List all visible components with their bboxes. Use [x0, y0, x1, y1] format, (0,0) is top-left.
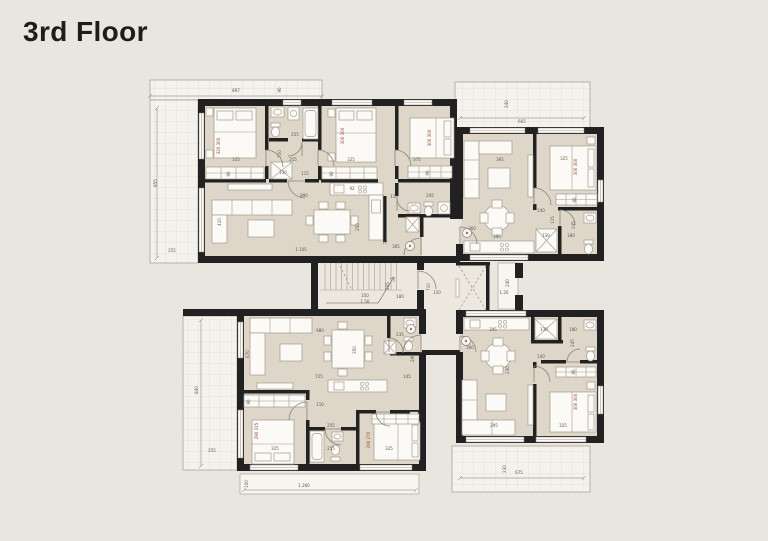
- dim-label: 890: [300, 193, 308, 198]
- dim-label: 245: [426, 193, 434, 198]
- dim-label: 840: [194, 386, 199, 394]
- dim-label: 92: [349, 186, 355, 191]
- dim-label: 240: [504, 100, 509, 108]
- dim-label: 230: [505, 366, 510, 374]
- dim-label: 320 300: [216, 137, 221, 154]
- dim-label: 130: [542, 233, 550, 238]
- dim-label: 290 270: [366, 431, 371, 448]
- terrace-strip-bottom: [240, 474, 419, 494]
- dim-label: 290: [410, 354, 415, 362]
- dim-label: 245: [570, 339, 575, 347]
- dim-label: 255: [291, 132, 299, 137]
- dim-label: 100: [244, 480, 249, 488]
- corridor-floor: [422, 213, 458, 352]
- dim-label: 140: [537, 354, 545, 359]
- dim-label: 375: [413, 157, 421, 162]
- dim-label: 130: [279, 170, 287, 175]
- dim-label: 300 300: [340, 127, 345, 144]
- dim-label: 235: [396, 332, 404, 337]
- dim-label: 130: [540, 327, 548, 332]
- dim-label: 350: [352, 346, 357, 354]
- dim-label: 325: [560, 156, 568, 161]
- dim-label: 395: [493, 234, 501, 239]
- dim-label: 205: [385, 282, 390, 290]
- dim-label: 395: [496, 157, 504, 162]
- dim-label: 410: [217, 218, 222, 226]
- dim-label: 395: [489, 327, 497, 332]
- elevator-floor: [458, 264, 488, 311]
- dim-label: 1.260: [298, 483, 310, 488]
- dim-label: 180: [567, 233, 575, 238]
- dim-label: 725: [315, 374, 323, 379]
- dim-label: 110: [316, 402, 324, 407]
- dim-label: 250: [355, 223, 360, 231]
- dim-label: 300 300: [573, 393, 578, 410]
- dim-label: 325: [559, 423, 567, 428]
- balcony-bottom-right: [452, 446, 590, 492]
- dim-label: 290 315: [254, 422, 259, 439]
- dim-label: 350: [361, 293, 369, 298]
- dim-label: 115: [550, 216, 555, 224]
- dim-label: 230: [502, 465, 507, 473]
- dim-label: 255: [289, 157, 297, 162]
- balcony-bottom-left: [183, 316, 237, 470]
- dim-label: 255: [208, 448, 216, 453]
- dim-label: 90: [329, 171, 334, 177]
- dim-label: 325: [271, 446, 279, 451]
- dim-label: 325: [232, 157, 240, 162]
- dim-label: 90: [226, 171, 231, 177]
- dim-label: 325: [385, 446, 393, 451]
- dim-label: 115: [301, 171, 309, 176]
- dim-label: 255: [327, 423, 335, 428]
- dim-label: 1.105: [295, 247, 307, 252]
- dim-label: 897: [232, 88, 240, 93]
- dim-label: 360: [466, 345, 474, 350]
- dim-label: 255: [327, 446, 335, 451]
- dim-label: 675: [515, 470, 523, 475]
- dim-label: 360: [468, 226, 476, 231]
- dim-label: 710: [277, 150, 282, 158]
- dim-label: 245: [571, 221, 576, 229]
- dim-label: 140: [537, 208, 545, 213]
- floor-plan-page: 3rd Floor: [0, 0, 768, 541]
- floor-plan: 89790855255325320 3002557102551301159032…: [0, 0, 768, 541]
- dim-label: 145: [403, 374, 411, 379]
- dim-label: 710: [426, 283, 431, 291]
- dim-label: 1.20: [500, 290, 509, 295]
- dim-label: 180: [569, 327, 577, 332]
- dim-label: 295: [490, 423, 498, 428]
- dim-label: 90: [572, 197, 577, 203]
- dim-label: 1.50: [361, 299, 370, 304]
- dim-label: 255: [168, 248, 176, 253]
- dim-label: 365: [392, 244, 400, 249]
- dim-label: 110: [390, 194, 398, 199]
- dim-label: 980: [316, 328, 324, 333]
- dim-label: 90: [425, 170, 430, 176]
- dim-label: 90: [571, 369, 576, 375]
- dim-label: 665: [518, 119, 526, 124]
- dim-label: 90: [246, 399, 251, 405]
- dim-label: 300 300: [427, 129, 432, 146]
- dim-label: 150: [433, 290, 441, 295]
- elevator-door: [456, 279, 459, 297]
- dim-label: 670: [245, 350, 250, 358]
- dim-label: 75: [383, 239, 388, 245]
- dim-label: 240: [505, 279, 510, 287]
- dim-label: 325: [347, 157, 355, 162]
- dim-label: 855: [153, 179, 158, 187]
- dim-label: 180: [396, 294, 404, 299]
- dim-label: 90: [277, 87, 282, 93]
- dim-label: 300 300: [573, 158, 578, 175]
